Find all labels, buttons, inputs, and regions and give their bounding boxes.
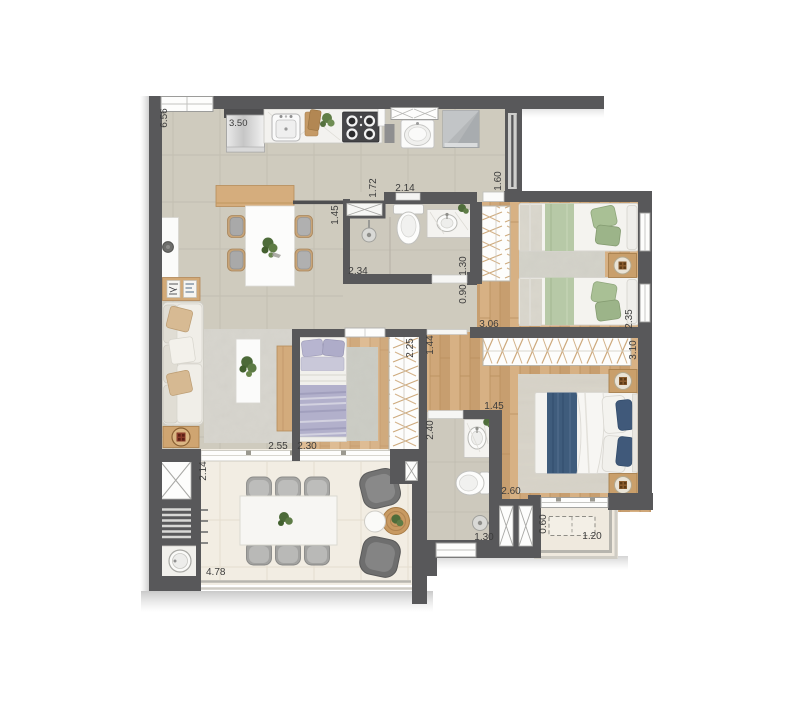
svg-text:2.30: 2.30 — [297, 441, 317, 452]
svg-text:1.45: 1.45 — [484, 401, 504, 412]
svg-text:4.78: 4.78 — [206, 567, 226, 578]
svg-text:1.45: 1.45 — [330, 205, 341, 225]
svg-text:3.10: 3.10 — [628, 340, 639, 360]
svg-text:1.30: 1.30 — [458, 256, 469, 276]
svg-text:2.55: 2.55 — [268, 441, 288, 452]
svg-text:2.14: 2.14 — [198, 461, 209, 481]
svg-text:1.72: 1.72 — [368, 178, 379, 198]
svg-text:2.25: 2.25 — [405, 338, 416, 358]
svg-text:2.40: 2.40 — [425, 420, 436, 440]
svg-text:1.60: 1.60 — [493, 171, 504, 191]
svg-text:3.50: 3.50 — [229, 118, 248, 129]
svg-text:0.60: 0.60 — [538, 514, 549, 534]
svg-text:2.35: 2.35 — [624, 309, 635, 329]
svg-text:1.30: 1.30 — [474, 532, 494, 543]
svg-text:2.34: 2.34 — [348, 266, 368, 277]
svg-text:2.14: 2.14 — [395, 183, 415, 194]
svg-text:1.44: 1.44 — [425, 335, 436, 355]
svg-text:1.20: 1.20 — [582, 531, 602, 542]
svg-text:3.06: 3.06 — [479, 319, 499, 330]
svg-text:6.56: 6.56 — [159, 108, 170, 128]
svg-text:2.60: 2.60 — [501, 486, 521, 497]
svg-text:0.90: 0.90 — [458, 284, 469, 304]
